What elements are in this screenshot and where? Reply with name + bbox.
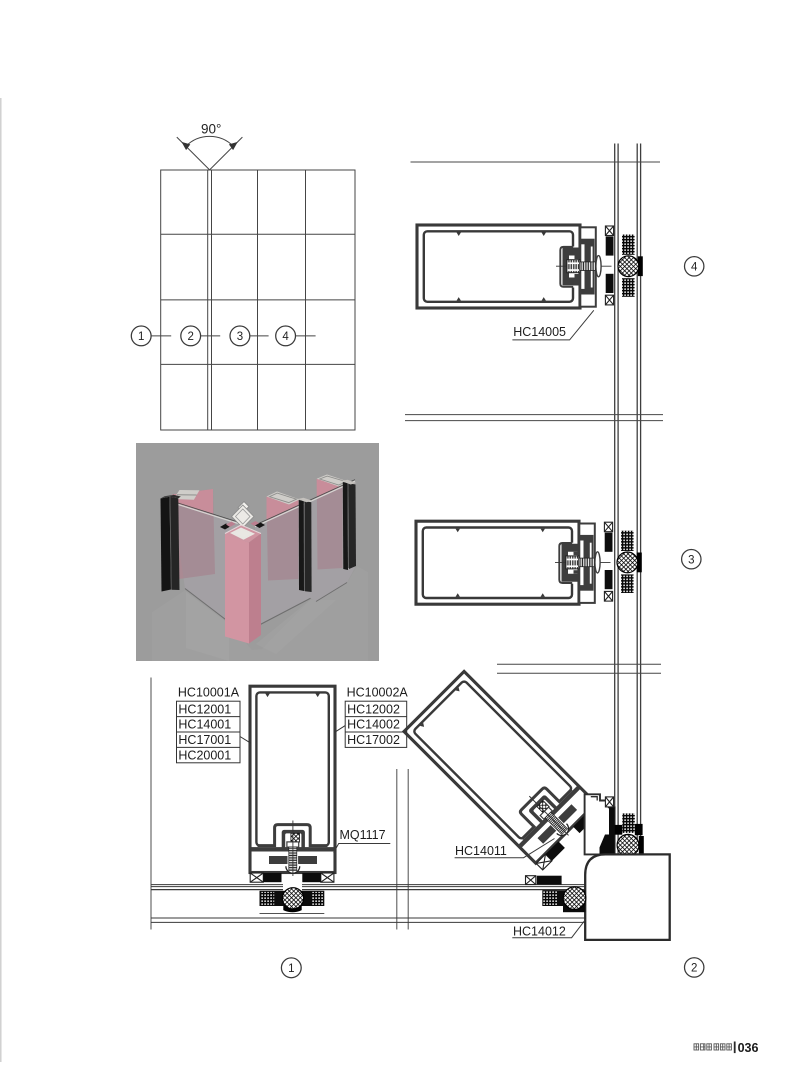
svg-text:1: 1 (138, 331, 144, 343)
svg-text:3: 3 (688, 554, 694, 566)
svg-text:036: 036 (738, 1041, 759, 1055)
svg-text:HC14002: HC14002 (347, 718, 400, 732)
svg-text:2: 2 (691, 963, 697, 975)
svg-text:2: 2 (187, 331, 193, 343)
svg-text:HC10002A: HC10002A (347, 686, 409, 700)
svg-text:HC14012: HC14012 (513, 925, 566, 939)
svg-text:4: 4 (691, 261, 698, 273)
svg-text:HC20001: HC20001 (178, 749, 231, 763)
svg-text:HC17001: HC17001 (178, 733, 231, 747)
svg-text:HC12001: HC12001 (178, 702, 231, 716)
svg-text:HC14001: HC14001 (178, 718, 231, 732)
svg-text:90°: 90° (201, 122, 221, 137)
svg-text:HC12002: HC12002 (347, 702, 400, 716)
svg-text:HC14005: HC14005 (513, 325, 566, 339)
svg-text:3: 3 (237, 331, 243, 343)
svg-text:4: 4 (282, 331, 289, 343)
svg-text:HC17002: HC17002 (347, 733, 400, 747)
svg-text:1: 1 (288, 963, 294, 975)
svg-text:HC14011: HC14011 (455, 844, 507, 858)
svg-text:HC10001A: HC10001A (178, 686, 240, 700)
svg-text:MQ1117: MQ1117 (340, 828, 386, 842)
